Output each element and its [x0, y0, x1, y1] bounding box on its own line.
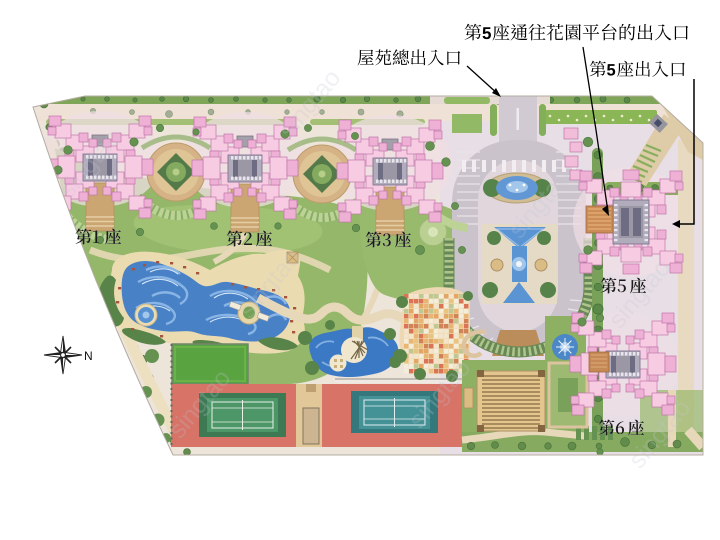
svg-text:N: N [84, 349, 93, 363]
